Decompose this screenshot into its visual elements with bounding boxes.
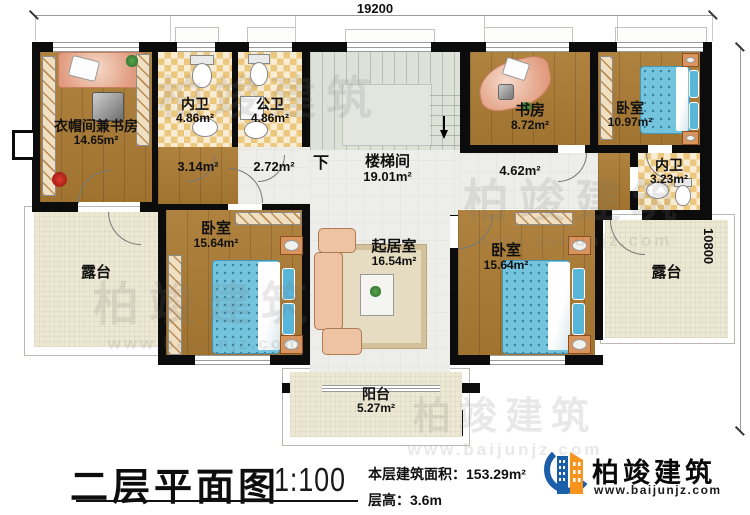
room-label-terrace-east: 露台: [605, 264, 728, 281]
window: [53, 42, 139, 52]
computer-monitor: [92, 92, 124, 121]
wall-segment: [270, 355, 310, 365]
plant: [370, 286, 381, 297]
floor-height-line: 层高：3.6m: [368, 490, 442, 510]
chair: [498, 84, 514, 100]
wall-segment: [140, 202, 158, 212]
room-label-terrace-west: 露台: [34, 264, 158, 281]
room-label-study: 书房 8.72m²: [470, 102, 590, 133]
window: [347, 42, 431, 52]
room-label-cloak-study: 衣帽间兼书房 14.65m²: [40, 118, 152, 148]
extension-line: [712, 16, 713, 41]
room-label-hall-3: 4.62m²: [480, 164, 560, 179]
room-label-living: 起居室 16.54m²: [340, 238, 448, 269]
chair: [52, 172, 67, 187]
wall-niche: [12, 130, 36, 160]
plant: [126, 55, 138, 67]
room-label-stairwell: 楼梯间 19.01m²: [345, 153, 430, 185]
stairs-down-arrow-icon: [443, 116, 445, 130]
logo-icon: [540, 448, 590, 504]
wall-segment: [598, 145, 648, 153]
window: [249, 42, 292, 52]
room-label-hall-2: 2.72m²: [238, 160, 310, 175]
pillow: [572, 303, 585, 335]
plan-title: 二层平面图: [70, 456, 280, 511]
bed-blanket: [676, 67, 688, 131]
logo-website: www.baijunjz.com: [594, 483, 722, 497]
room-label-bedroom-west: 卧室 15.64m²: [170, 220, 262, 251]
pillow: [689, 102, 699, 130]
dimension-right: 10800: [701, 228, 716, 264]
room-label-balcony: 阳台 5.27m²: [290, 386, 462, 416]
room-label-public-bath: 公卫 4.86m²: [238, 96, 302, 126]
title-underline: [76, 500, 358, 502]
nightstand: [682, 53, 699, 67]
bed-blanket: [548, 262, 570, 350]
window: [617, 42, 703, 52]
pillow: [572, 268, 585, 300]
room-label-inner-bath1: 内卫 4.86m²: [158, 96, 232, 126]
room-label-inner-bath2: 内卫 3.23m²: [638, 157, 700, 187]
extension-line: [170, 16, 171, 41]
wall-segment: [158, 355, 195, 365]
extension-line: [617, 16, 618, 41]
floor-plan-canvas: 19200 10800: [0, 0, 750, 515]
stairs-down-arrow-icon: [440, 130, 448, 139]
wall-segment: [585, 145, 598, 153]
wall-segment: [460, 145, 558, 153]
window: [490, 355, 565, 365]
extension-line: [35, 16, 36, 41]
pillow: [689, 70, 699, 98]
dimension-line-right: [740, 46, 741, 432]
floor-area-line: 本层建筑面积：153.29m²: [368, 464, 526, 484]
wall-segment: [460, 52, 470, 153]
nightstand: [280, 236, 303, 255]
wall-segment: [450, 355, 490, 365]
extension-line: [484, 16, 485, 41]
plan-scale: 1:100: [274, 461, 346, 499]
room-label-bedroom-east: 卧室 15.64m²: [460, 242, 552, 273]
stairs-down-label: 下: [306, 155, 336, 173]
room-label-bedroom-ne: 卧室 10.97m²: [598, 100, 662, 130]
window: [195, 355, 270, 365]
wall-segment: [672, 145, 712, 153]
nightstand: [682, 131, 699, 145]
dimension-top: 19200: [0, 1, 750, 16]
wall-segment: [565, 355, 603, 365]
nightstand: [568, 335, 591, 354]
room-label-hall-1: 3.14m²: [158, 160, 238, 175]
window: [486, 42, 569, 52]
extension-line: [295, 16, 296, 41]
wall-segment: [32, 202, 78, 212]
wall-segment: [590, 52, 598, 153]
wall-segment: [450, 248, 458, 362]
window: [177, 42, 215, 52]
